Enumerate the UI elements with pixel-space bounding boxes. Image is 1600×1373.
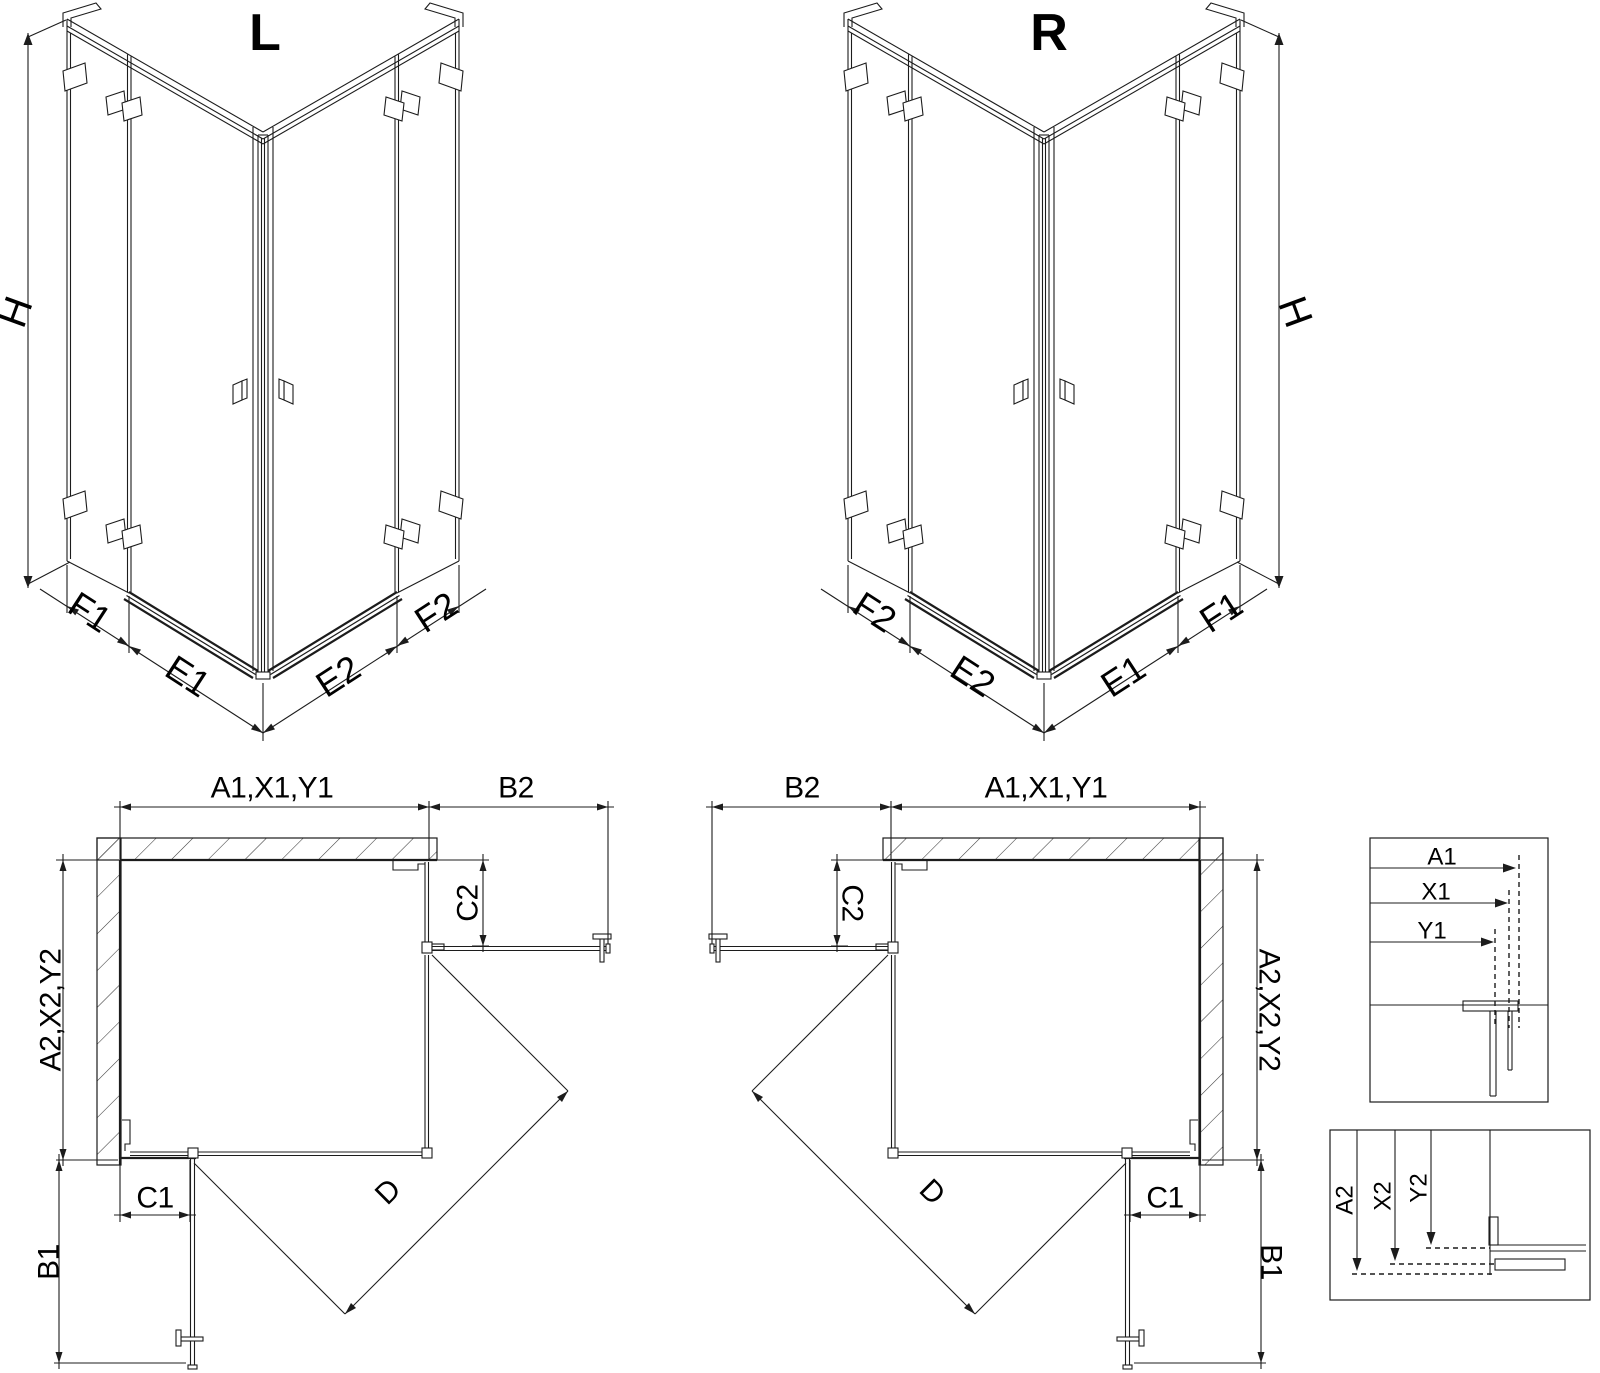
- dim-label-e-right: E2: [308, 647, 367, 705]
- dim-label-depth: A2,X2,Y2: [1253, 949, 1286, 1072]
- dim-label-e-left: E1: [158, 647, 217, 705]
- dim-label-width: A1,X1,Y1: [985, 772, 1108, 805]
- plan-geometry: [54, 801, 614, 1369]
- detail-frame: [1370, 838, 1548, 1102]
- dim-label-f-right: F2: [407, 583, 465, 640]
- wall-hatching: [1199, 838, 1223, 1165]
- wall-hatching: [97, 838, 121, 1165]
- detail-label-y2: Y2: [1406, 1173, 1433, 1202]
- dim-label-diagonal: D: [369, 1173, 407, 1211]
- dim-label-f-left: F2: [846, 583, 904, 640]
- technical-drawing-page: L H F1 E1 E2 F2 R H F2 E2 E1 F1 A1,X1,Y1…: [0, 0, 1600, 1373]
- variant-title: R: [1030, 4, 1068, 62]
- dim-label-diagonal: D: [913, 1173, 951, 1211]
- profile-bar-section: [1495, 1259, 1565, 1270]
- dim-label-height: H: [1269, 291, 1320, 333]
- dim-label-door-side: B1: [33, 1244, 66, 1280]
- dim-label-c2: C2: [452, 884, 485, 921]
- dim-label-door-top: B2: [784, 772, 820, 805]
- detail-width-section: A1 X1 Y1: [1350, 830, 1600, 1115]
- plan-view-right: A1,X1,Y1 B2 A2,X2,Y2 C2 C1 B1 D: [680, 770, 1300, 1373]
- dim-label-depth: A2,X2,Y2: [35, 949, 68, 1072]
- iso-view-right: R H F2 E2 E1 F1: [781, 0, 1311, 760]
- dim-label-width: A1,X1,Y1: [211, 772, 334, 805]
- dim-label-door-top: B2: [498, 772, 534, 805]
- variant-title: L: [249, 4, 281, 62]
- detail-label-a1: A1: [1427, 844, 1456, 871]
- detail-label-x1: X1: [1421, 879, 1450, 906]
- dim-label-door-side: B1: [1255, 1244, 1288, 1280]
- dim-label-f-left: F1: [61, 583, 119, 640]
- plan-view-left: A1,X1,Y1 B2 A2,X2,Y2 C2 C1 B1 D: [40, 770, 660, 1373]
- detail-label-a2: A2: [1332, 1185, 1359, 1214]
- dim-label-height: H: [0, 291, 42, 333]
- dim-label-e-right: E1: [1093, 647, 1152, 705]
- dim-label-c1: C1: [1146, 1182, 1183, 1215]
- iso-enclosure: [40, 3, 486, 741]
- dim-label-c2: C2: [836, 884, 869, 921]
- wall-hatching: [883, 838, 1223, 860]
- dim-label-e-left: E2: [943, 647, 1002, 705]
- wall-profile-section: [1463, 1001, 1518, 1011]
- dim-label-c1: C1: [136, 1182, 173, 1215]
- plan-geometry: [706, 801, 1266, 1369]
- wall-hatching: [97, 838, 437, 860]
- detail-label-x2: X2: [1370, 1181, 1397, 1210]
- detail-label-y1: Y1: [1417, 918, 1446, 945]
- iso-view-left: L H F1 E1 E2 F2: [0, 0, 530, 760]
- detail-depth-section: A2 X2 Y2: [1318, 1118, 1600, 1318]
